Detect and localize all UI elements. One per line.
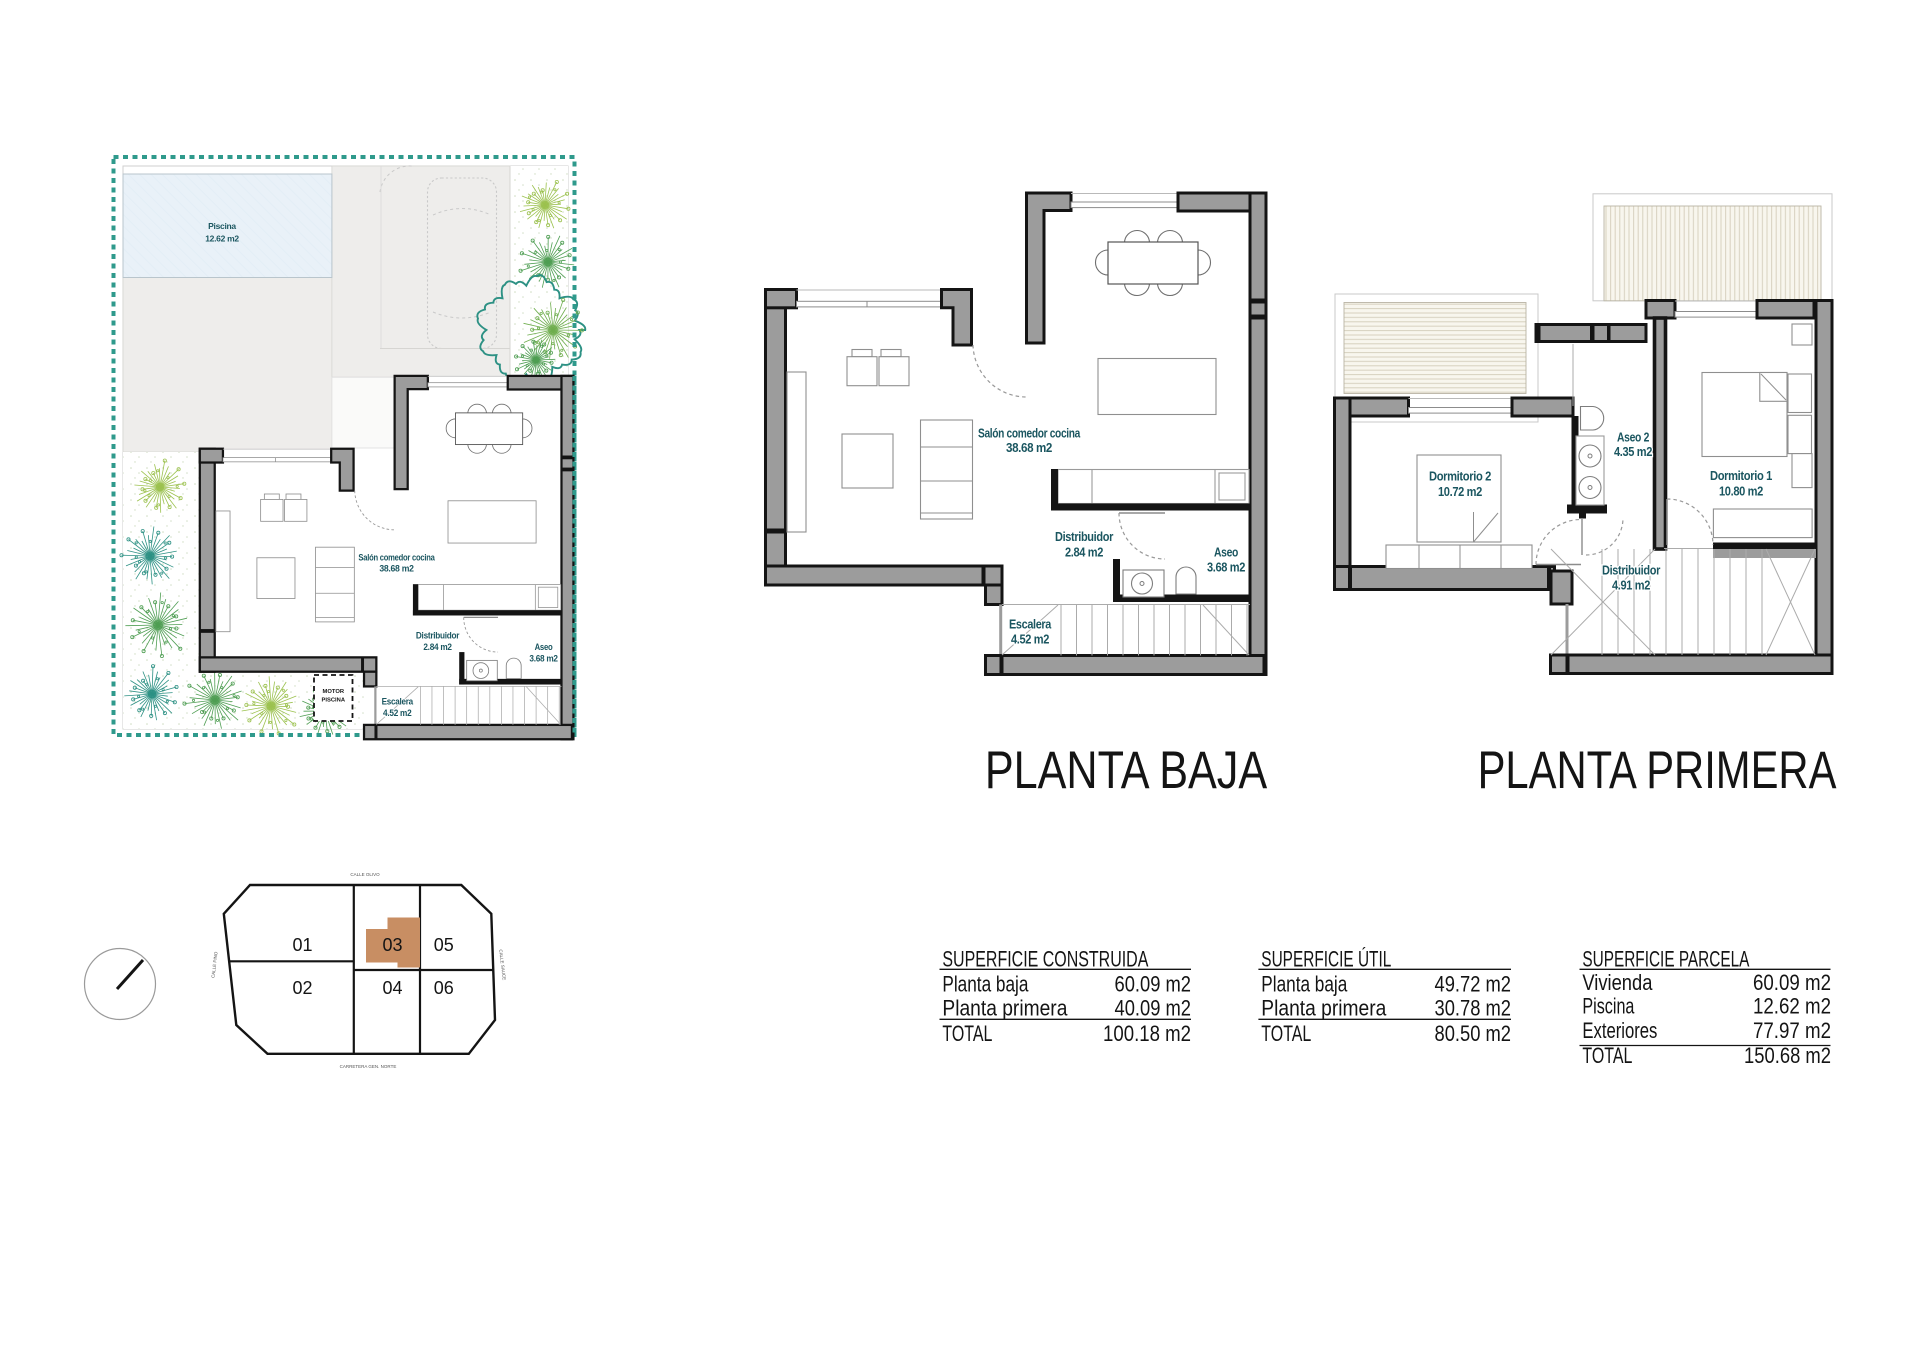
svg-text:4.91 m2: 4.91 m2 — [1612, 579, 1650, 593]
svg-text:60.09 m2: 60.09 m2 — [1753, 970, 1831, 995]
svg-text:12.62 m2: 12.62 m2 — [205, 234, 239, 244]
svg-text:Piscina: Piscina — [1582, 994, 1635, 1019]
svg-text:SUPERFICIE ÚTIL: SUPERFICIE ÚTIL — [1261, 947, 1391, 972]
svg-text:TOTAL: TOTAL — [1261, 1021, 1311, 1046]
svg-text:Vivienda: Vivienda — [1582, 970, 1653, 995]
svg-text:10.72 m2: 10.72 m2 — [1438, 485, 1482, 499]
svg-text:TOTAL: TOTAL — [942, 1021, 992, 1046]
svg-text:MOTOR: MOTOR — [323, 689, 345, 695]
svg-text:12.62 m2: 12.62 m2 — [1753, 994, 1831, 1019]
svg-text:Planta baja: Planta baja — [1261, 972, 1348, 997]
svg-text:4.35 m2: 4.35 m2 — [1614, 445, 1652, 459]
svg-text:77.97 m2: 77.97 m2 — [1753, 1018, 1831, 1043]
svg-text:05: 05 — [434, 935, 454, 955]
svg-text:Planta primera: Planta primera — [1261, 996, 1387, 1021]
svg-text:PLANTA PRIMERA: PLANTA PRIMERA — [1478, 741, 1837, 800]
svg-text:PLANTA BAJA: PLANTA BAJA — [985, 741, 1268, 800]
svg-text:Distribuidor: Distribuidor — [1602, 564, 1660, 578]
svg-text:Dormitorio 2: Dormitorio 2 — [1429, 470, 1491, 484]
svg-text:60.09 m2: 60.09 m2 — [1115, 972, 1192, 997]
svg-text:40.09 m2: 40.09 m2 — [1115, 996, 1192, 1021]
svg-text:Exteriores: Exteriores — [1582, 1018, 1657, 1043]
svg-text:03: 03 — [382, 935, 402, 955]
svg-text:10.80 m2: 10.80 m2 — [1719, 485, 1763, 499]
svg-text:30.78 m2: 30.78 m2 — [1435, 996, 1512, 1021]
svg-text:TOTAL: TOTAL — [1582, 1043, 1632, 1068]
svg-text:02: 02 — [292, 978, 312, 998]
svg-text:SUPERFICIE CONSTRUIDA: SUPERFICIE CONSTRUIDA — [942, 947, 1148, 972]
svg-text:04: 04 — [382, 978, 402, 998]
svg-text:150.68 m2: 150.68 m2 — [1744, 1043, 1831, 1068]
svg-text:CALLE OLIVO: CALLE OLIVO — [350, 872, 380, 877]
svg-text:PISCINA: PISCINA — [322, 698, 346, 704]
svg-text:Planta baja: Planta baja — [942, 972, 1029, 997]
svg-text:Piscina: Piscina — [208, 221, 236, 231]
svg-text:Dormitorio 1: Dormitorio 1 — [1710, 469, 1772, 483]
svg-text:06: 06 — [434, 978, 454, 998]
svg-text:100.18 m2: 100.18 m2 — [1103, 1021, 1191, 1046]
svg-text:01: 01 — [292, 935, 312, 955]
svg-text:CARRETERA GEN. NORTE: CARRETERA GEN. NORTE — [340, 1064, 397, 1069]
svg-text:80.50 m2: 80.50 m2 — [1435, 1021, 1512, 1046]
svg-text:Aseo 2: Aseo 2 — [1617, 431, 1649, 445]
svg-text:SUPERFICIE PARCELA: SUPERFICIE PARCELA — [1582, 947, 1749, 972]
svg-text:49.72 m2: 49.72 m2 — [1435, 972, 1512, 997]
svg-text:Planta primera: Planta primera — [942, 996, 1068, 1021]
